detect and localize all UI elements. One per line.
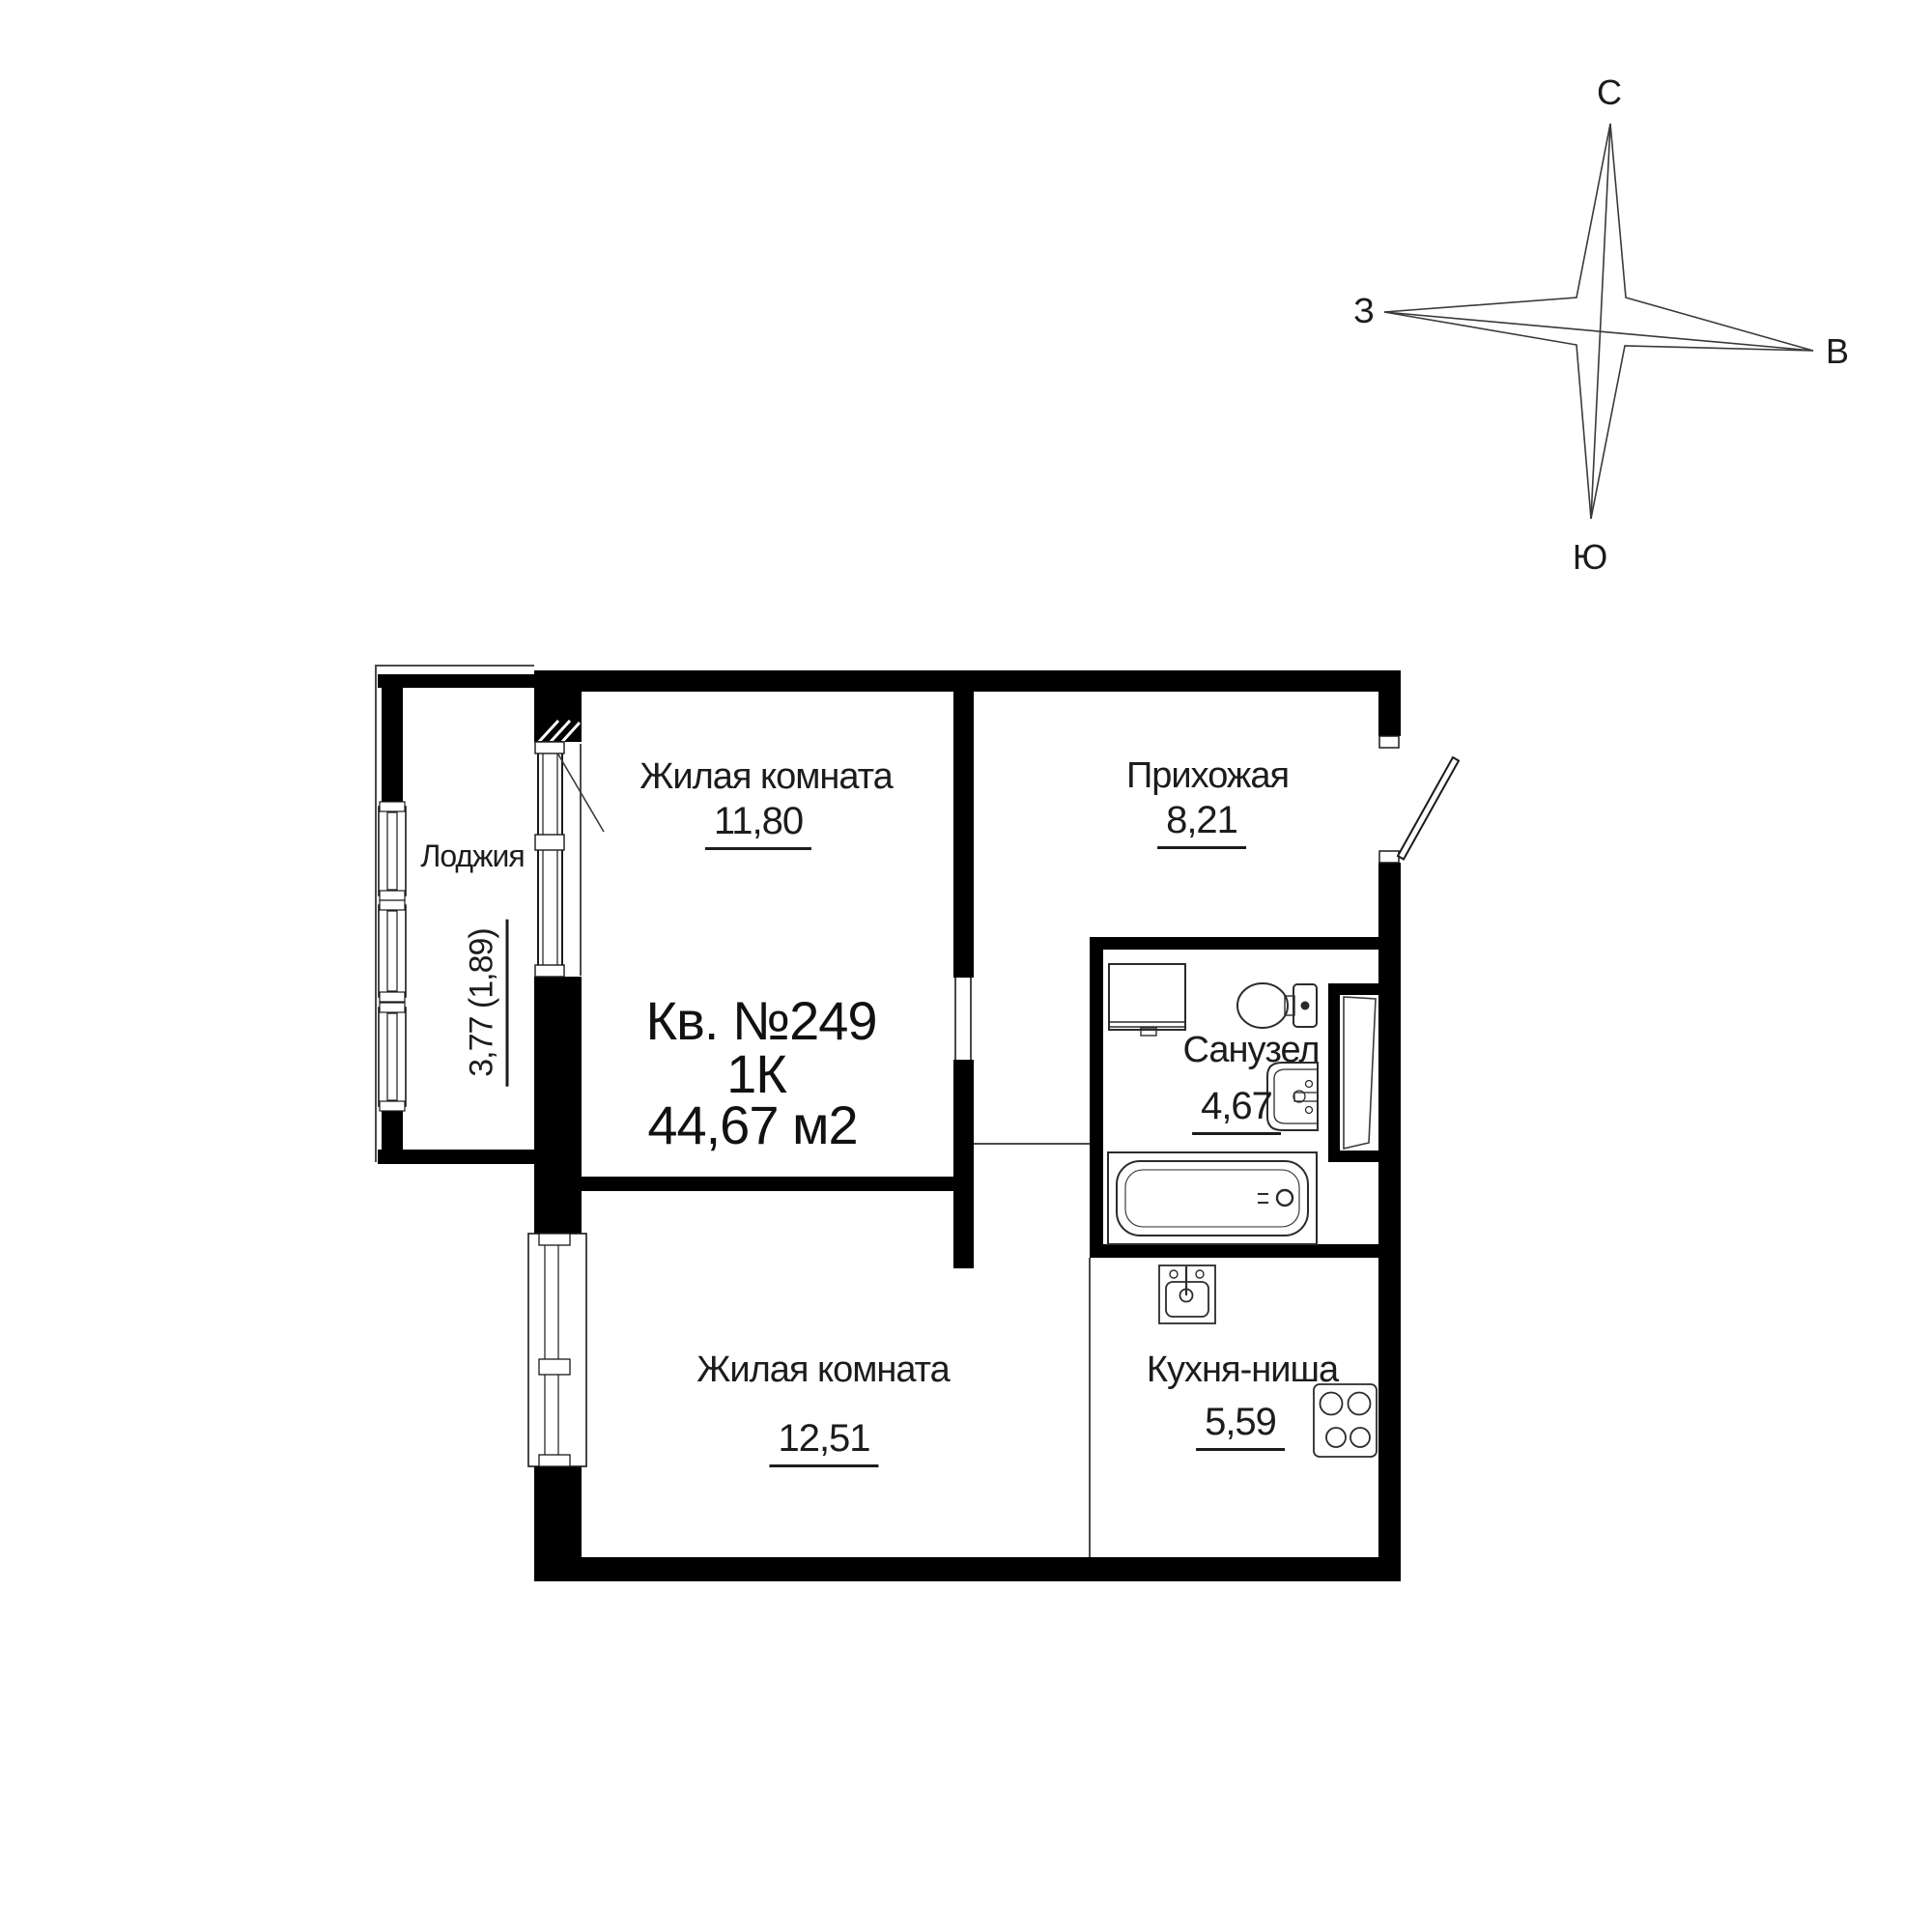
room-label-living2: Жилая комната — [696, 1351, 949, 1388]
wall-segment — [378, 674, 534, 688]
room-label-hallway: Прихожая — [1126, 757, 1289, 794]
apartment-total-area: 44,67 м2 — [647, 1098, 857, 1152]
wall-segment — [582, 1177, 974, 1191]
wall-segment — [1090, 937, 1401, 950]
wall-segment — [534, 1466, 582, 1559]
room-label-living1: Жилая комната — [639, 758, 892, 795]
door-leaf — [1398, 757, 1459, 860]
compass-star — [1384, 124, 1813, 519]
wall-segment — [382, 1106, 403, 1151]
wall-segment — [1090, 950, 1103, 1258]
room-label-kitchen: Кухня-ниша — [1147, 1351, 1338, 1388]
compass-north-label: С — [1597, 75, 1622, 110]
wall-segment — [953, 1060, 974, 1268]
wall-segment — [1328, 1151, 1378, 1162]
compass-east-label: В — [1826, 334, 1849, 369]
door-frame-stub — [1379, 736, 1399, 748]
compass-south-label: Ю — [1573, 540, 1607, 575]
compass-axis-we — [1384, 312, 1813, 351]
wall-segment — [382, 688, 403, 807]
floor-plan-page: Жилая комната 11,80 Прихожая 8,21 Санузе… — [0, 0, 1932, 1932]
wall-segment — [534, 692, 582, 721]
washing-machine-icon — [1109, 964, 1185, 1036]
wall-segment — [1378, 863, 1401, 1579]
wall-segment — [1090, 1244, 1401, 1258]
stove-icon — [1314, 1384, 1377, 1457]
compass-west-label: З — [1353, 294, 1375, 328]
ventilation-hatch — [534, 721, 582, 744]
loggia-glazing — [379, 802, 406, 1111]
bathroom-door — [1344, 997, 1376, 1149]
wall-segment — [953, 692, 974, 978]
room-area-loggia: 3,77 (1,89) — [466, 919, 509, 1086]
door-leaf — [1344, 997, 1376, 1149]
wall-segment — [378, 1150, 534, 1164]
door-frame-stub — [1379, 851, 1399, 863]
bathtub-icon — [1108, 1152, 1317, 1244]
room-area-hallway: 8,21 — [1157, 801, 1246, 849]
apartment-type: 1К — [726, 1047, 786, 1101]
wall-segment — [1328, 983, 1340, 1162]
room-label-loggia: Лоджия — [420, 840, 524, 871]
living2-window — [528, 1234, 586, 1466]
compass-rose — [1384, 124, 1813, 519]
wall-segment — [1378, 670, 1401, 736]
compass-axis-ns — [1591, 124, 1610, 519]
room-area-living1: 11,80 — [705, 802, 811, 850]
window-icon — [379, 900, 406, 1002]
wall-segment — [534, 670, 1401, 692]
wall-segment — [534, 1557, 1401, 1581]
window-icon — [379, 1003, 406, 1111]
kitchen-sink-icon — [1159, 1265, 1215, 1323]
window-icon — [379, 802, 406, 900]
floor-plan-drawing — [0, 0, 1932, 1932]
wall-segment — [534, 977, 582, 1235]
toilet-icon — [1237, 983, 1317, 1028]
apartment-number: Кв. №249 — [646, 994, 877, 1048]
room-area-living2: 12,51 — [769, 1419, 878, 1467]
room-label-bathroom: Санузел — [1182, 1032, 1319, 1068]
room-area-kitchen: 5,59 — [1196, 1403, 1285, 1451]
room-area-bathroom: 4,67 — [1192, 1087, 1281, 1135]
